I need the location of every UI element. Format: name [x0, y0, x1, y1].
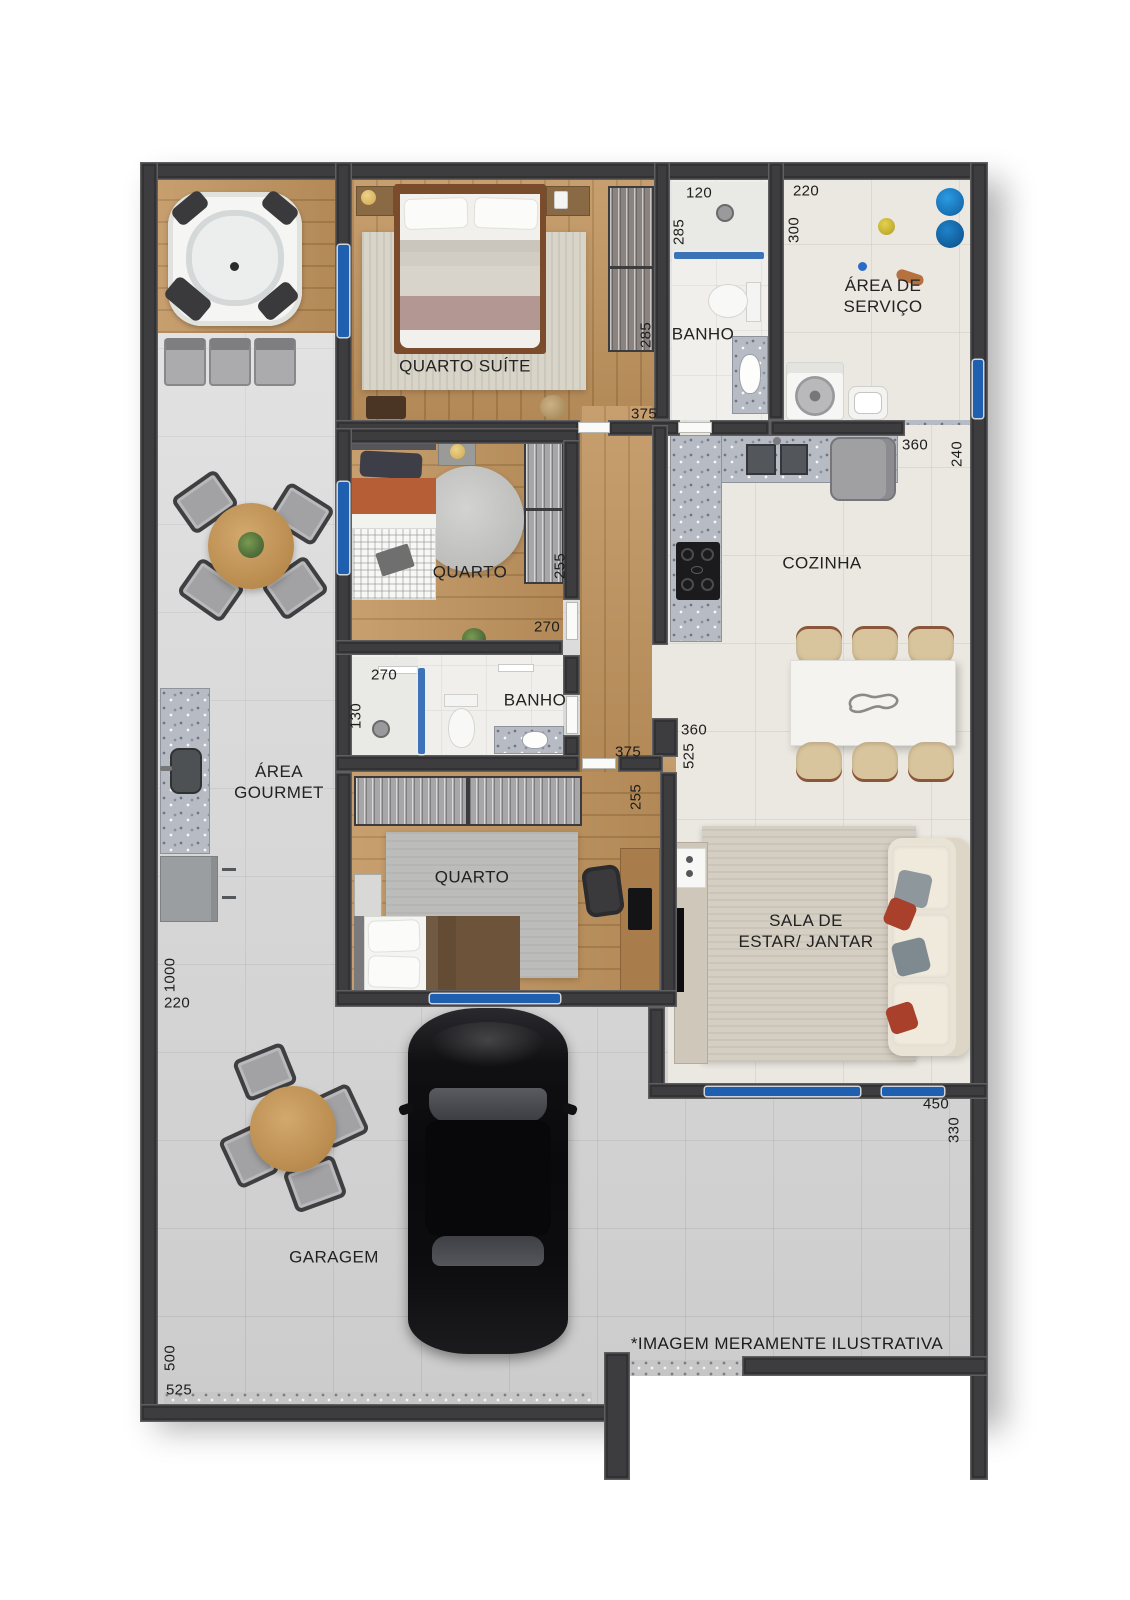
banho1-sink-basin [739, 354, 761, 394]
room-label-area-gourmet-line1: ÁREA [255, 762, 303, 781]
room-label-banho1: BANHO [672, 323, 734, 344]
room-label-sala: SALA DE ESTAR/ JANTAR [739, 910, 874, 953]
suite-dresser [366, 396, 406, 419]
quarto2-bed-pillow [359, 450, 422, 479]
toy-dot [858, 262, 867, 271]
room-label-quarto3: QUARTO [435, 866, 510, 887]
wall-entry-pillar [604, 1352, 630, 1480]
quarto3-bed-blanket [426, 916, 520, 992]
quarto3-laptop [628, 888, 652, 930]
sala-appliance [676, 848, 706, 888]
dim-quarto3-side: 255 [628, 784, 645, 810]
room-label-area-gourmet: ÁREA GOURMET [234, 761, 324, 804]
dim-banho2-width: 270 [371, 667, 397, 684]
washer-drum [795, 376, 835, 416]
wall-quarto2-top [335, 428, 580, 444]
bench-seat [254, 338, 296, 386]
quarto3-wardrobe-divider [466, 778, 470, 824]
toy-ball [878, 218, 895, 235]
dim-quarto2-closet: 255 [552, 553, 569, 579]
dim-sala-depth: 525 [681, 743, 698, 769]
shower-glass-banho1 [674, 252, 764, 259]
door-banho2 [566, 696, 578, 734]
quarto3-pillow [367, 955, 420, 989]
wall-bottom-left [140, 1404, 610, 1422]
wall-left [140, 162, 158, 1422]
quarto3-pillow [367, 919, 420, 953]
shower-glass-banho2 [418, 668, 425, 754]
wall-quarto3-right [660, 772, 677, 1007]
dim-sala-opening: 360 [681, 722, 707, 739]
gourmet-sink [170, 748, 202, 794]
dim-quarto2-width: 270 [534, 619, 560, 636]
banho1-shower-head [716, 204, 734, 222]
banho2-toilet-tank [444, 694, 478, 707]
wall-quarto3-left [335, 772, 352, 1007]
wall-banho1-servico [768, 162, 784, 420]
quarto3-bed-headboard [354, 916, 364, 992]
table-centerpiece [842, 684, 904, 722]
window-suite [338, 245, 349, 337]
garage-table [250, 1086, 336, 1172]
floor-plan: 120 220 285 300 285 375 360 240 255 270 … [0, 0, 1130, 1600]
sala-appliance-knob [686, 856, 693, 863]
banho2-shelf [498, 664, 534, 672]
dim-servico-width: 220 [793, 183, 819, 200]
suite-bed-throw [400, 296, 540, 330]
room-label-sala-line2: ESTAR/ JANTAR [739, 932, 874, 951]
gourmet-cabinet-handle [222, 896, 236, 899]
dim-garagem-depth: 500 [162, 1345, 179, 1371]
kitchen-counter-left [670, 435, 722, 642]
suite-plant [540, 395, 566, 419]
kitchen-sink [780, 444, 808, 475]
floor-opening-hall-cozinha [652, 645, 668, 718]
stove-burner [681, 578, 694, 591]
car-hood-shine [430, 1022, 546, 1068]
window-quarto3 [430, 994, 560, 1003]
suite-wardrobe-divider [610, 266, 652, 269]
room-label-area-servico-line2: SERVIÇO [843, 297, 922, 316]
suite-lamp [361, 190, 376, 205]
dining-chair [796, 742, 842, 782]
bucket [936, 188, 964, 216]
quarto2-bed-blanket [352, 478, 436, 514]
room-label-sala-line1: SALA DE [769, 911, 843, 930]
kitchen-sink [746, 444, 776, 475]
dim-banho1-width: 120 [686, 185, 712, 202]
gourmet-faucet [160, 766, 172, 771]
wall-banho1-left [654, 162, 670, 420]
window-quarto2 [338, 482, 349, 574]
wall-servico-bottom [770, 420, 905, 436]
suite-nightstand-right [546, 186, 590, 216]
floor-hall [580, 406, 652, 772]
dining-chair [852, 742, 898, 782]
banho2-sink-basin [522, 731, 548, 749]
quarto3-nightstand [354, 874, 382, 918]
dim-sala-side: 330 [946, 1117, 963, 1143]
stove-burner [701, 548, 714, 561]
dim-hall-lower: 375 [615, 744, 641, 761]
gourmet-cabinet-handle [222, 868, 236, 871]
sala-appliance-knob [686, 870, 693, 877]
window-servico [973, 360, 983, 418]
quarto2-wardrobe-divider [526, 508, 562, 511]
bench-seat [209, 338, 251, 386]
stove-center [691, 566, 703, 574]
dim-hall-upper: 375 [631, 406, 657, 423]
banho1-toilet-tank [746, 282, 761, 322]
suite-decor [554, 191, 568, 209]
car-rear-window [432, 1236, 544, 1266]
suite-pillow [403, 197, 468, 230]
quarto3-desk-chair [581, 864, 626, 919]
car-windshield [429, 1088, 547, 1122]
banho1-toilet-bowl [708, 284, 748, 318]
sala-tv [676, 908, 684, 992]
laundry-tub-basin [854, 392, 882, 414]
dining-chair [908, 742, 954, 782]
dim-banho1-depth: 285 [671, 219, 688, 245]
quarto2-lamp [450, 444, 465, 459]
gourmet-table-plant [238, 532, 264, 558]
dim-gourmet-width: 220 [164, 995, 190, 1012]
wall-entry-top [742, 1356, 988, 1376]
stove-burner [701, 578, 714, 591]
dim-banho2-depth: 130 [348, 703, 365, 729]
room-label-area-gourmet-line2: GOURMET [234, 783, 324, 802]
wall-corner-block [652, 718, 678, 757]
suite-pillow [473, 197, 538, 230]
room-label-garagem: GARAGEM [289, 1246, 379, 1267]
stove-burner [681, 548, 694, 561]
room-label-quarto-suite: QUARTO SUÍTE [399, 355, 531, 376]
dim-suite-closet: 285 [638, 322, 655, 348]
disclaimer-text: *IMAGEM MERAMENTE ILUSTRATIVA [631, 1334, 943, 1354]
banho2-shower-head [372, 720, 390, 738]
wall-banho2-right-b [563, 735, 580, 757]
wall-quarto2-banho2 [335, 640, 563, 655]
quarto2-bed-sheet [352, 514, 436, 528]
room-label-cozinha: COZINHA [782, 552, 861, 573]
jacuzzi-tub [186, 210, 284, 306]
banho2-toilet-bowl [448, 708, 475, 748]
door-quarto3 [582, 758, 616, 769]
fridge [830, 437, 896, 501]
dim-sala-width: 450 [923, 1096, 949, 1113]
dim-servico-depth: 300 [786, 217, 803, 243]
driveway-strip-gate [630, 1360, 742, 1376]
room-label-quarto2: QUARTO [433, 561, 508, 582]
gourmet-cabinet [160, 856, 218, 922]
bench-seat [164, 338, 206, 386]
room-label-area-servico: ÁREA DE SERVIÇO [843, 275, 922, 318]
door-suite [578, 422, 610, 433]
door-banho1 [678, 422, 712, 433]
bucket [936, 220, 964, 248]
floor-entry-recess [630, 1376, 970, 1480]
kitchen-faucet [773, 437, 781, 445]
dim-garagem-width: 525 [166, 1382, 192, 1399]
dim-cozinha-depth: 240 [949, 441, 966, 467]
window-sala [705, 1087, 860, 1096]
car-roof [425, 1120, 551, 1236]
car [408, 1008, 568, 1354]
room-label-area-servico-line1: ÁREA DE [845, 276, 922, 295]
dim-gourmet-length: 1000 [162, 958, 179, 993]
dim-cozinha-width: 360 [902, 437, 928, 454]
wall-hall-cozinha [652, 425, 668, 645]
wall-banho1-bottom [710, 420, 770, 436]
door-quarto2 [566, 602, 578, 640]
wall-top [140, 162, 988, 180]
jacuzzi-drain [230, 262, 239, 271]
wall-quarto3-top [335, 755, 580, 772]
room-label-banho2: BANHO [504, 689, 566, 710]
